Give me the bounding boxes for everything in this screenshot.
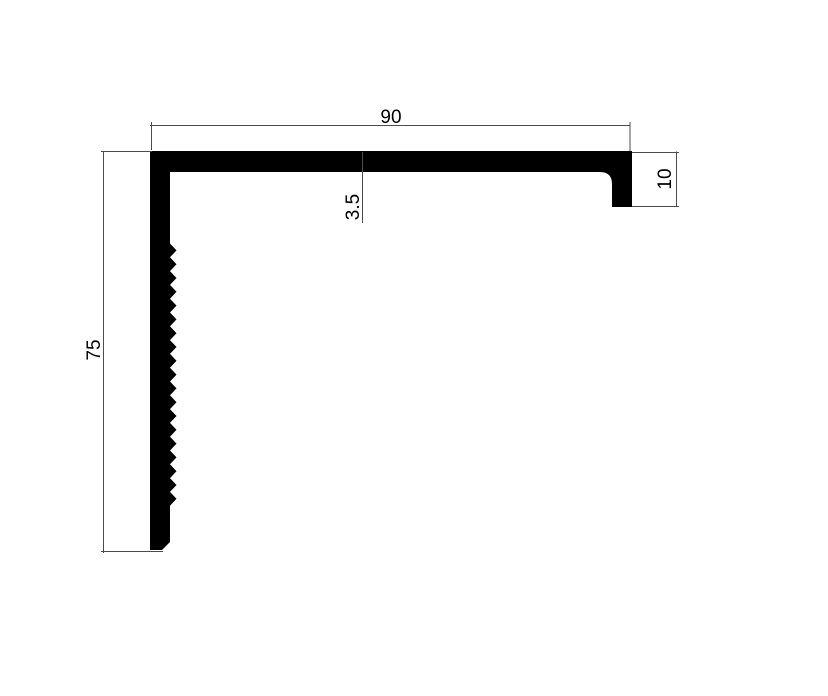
dimension-label-top-width: 90	[380, 107, 401, 128]
l-profile-shape	[150, 151, 632, 550]
dimension-right-lip: 10	[632, 152, 679, 208]
dimension-label-right-lip: 10	[655, 168, 676, 189]
dimension-label-wall-thickness: 3.5	[343, 194, 364, 220]
dimension-top-width: 90	[150, 107, 630, 151]
profile-drawing-svg: 90 75 3.5 10	[0, 0, 828, 696]
dimension-label-left-height: 75	[84, 339, 105, 360]
drawing-canvas: 90 75 3.5 10	[0, 0, 828, 696]
